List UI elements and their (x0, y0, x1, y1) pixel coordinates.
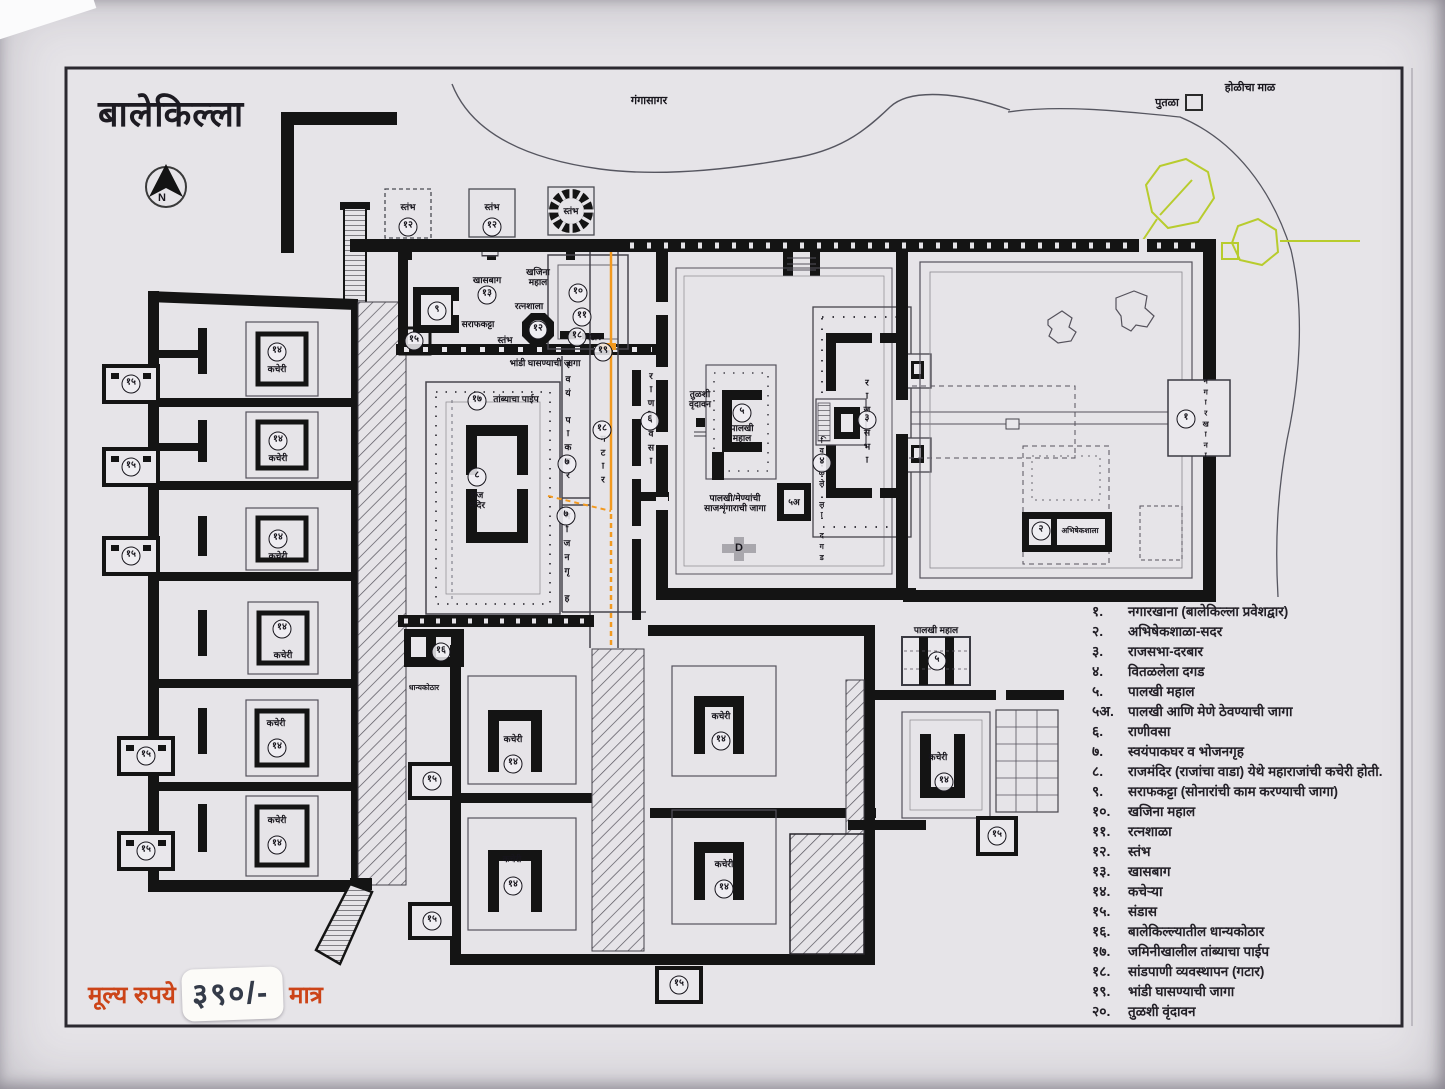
legend-item-number: १३. (1092, 862, 1128, 881)
legend-item-number: २. (1092, 622, 1128, 641)
legend-item-number: १२. (1092, 842, 1128, 861)
legend-item-text: वितळलेला दगड (1128, 662, 1205, 680)
legend-item-text: राजमंदिर (राजांचा वाडा) येथे महाराजांची … (1128, 762, 1382, 780)
legend-item-number: ८. (1092, 762, 1128, 781)
legend-item: १३.खासबाग (1092, 861, 1394, 881)
legend-item-number: १५. (1092, 902, 1128, 921)
scanned-map-page: गंगासागरहोळीचा माळपुतळाNस्तंभस्तंभस्तंभख… (0, 0, 1445, 1089)
legend-item: १९.भांडी घासण्याची जागा (1092, 981, 1394, 1001)
legend-item-number: ७. (1092, 742, 1128, 761)
legend-list: १.नगारखाना (बालेकिल्ला प्रवेशद्वार)२.अभि… (1092, 601, 1394, 1021)
legend-item-number: १९. (1092, 982, 1128, 1001)
legend-item-text: पालखी आणि मेणे ठेवण्याची जागा (1128, 702, 1293, 720)
price-row: मूल्य रुपये ३९०/- मात्र (88, 968, 323, 1020)
legend-item: १४.कचेऱ्या (1092, 881, 1394, 901)
legend-item: १७.जमिनीखालील तांब्याचा पाईप (1092, 941, 1394, 961)
legend-item-number: ११. (1092, 822, 1128, 841)
legend-item-text: संडास (1128, 902, 1157, 920)
legend-item: ८.राजमंदिर (राजांचा वाडा) येथे महाराजांच… (1092, 761, 1394, 781)
legend-item-text: स्वयंपाकघर व भोजनगृह (1128, 742, 1244, 760)
legend-item-text: अभिषेकशाळा-सदर (1128, 622, 1222, 640)
copper-pipe-line (548, 252, 611, 646)
legend-item: ५अ.पालखी आणि मेणे ठेवण्याची जागा (1092, 701, 1394, 721)
legend-item: २.अभिषेकशाळा-सदर (1092, 621, 1394, 641)
putala-square-icon (1186, 95, 1202, 110)
legend-item: ५.पालखी महाल (1092, 681, 1394, 701)
legend-item-text: जमिनीखालील तांब्याचा पाईप (1128, 942, 1269, 960)
legend-item-number: २०. (1092, 1002, 1128, 1021)
legend-item-text: कचेऱ्या (1128, 882, 1162, 900)
legend-item-number: १०. (1092, 802, 1128, 821)
legend-item: १५.संडास (1092, 901, 1394, 921)
legend-item: ९.सराफकट्टा (सोनारांची काम करण्याची जागा… (1092, 781, 1394, 801)
north-arrow-icon (146, 164, 186, 207)
legend-item: १०.खजिना महाल (1092, 801, 1394, 821)
legend-item-text: राणीवसा (1128, 722, 1170, 740)
gangasagar-lake-outline (452, 84, 1010, 172)
legend-item-text: स्तंभ (1128, 842, 1150, 860)
legend-item-text: पालखी महाल (1128, 682, 1195, 700)
legend-item: ६.राणीवसा (1092, 721, 1394, 741)
legend-item-number: १७. (1092, 942, 1128, 961)
stambh-tower-base-icon (548, 188, 594, 234)
legend-item: १.नगारखाना (बालेकिल्ला प्रवेशद्वार) (1092, 601, 1394, 621)
price-prefix: मूल्य रुपये (88, 978, 176, 1011)
page-title: बालेकिल्ला (98, 88, 244, 137)
legend-item-text: सांडपाणी व्यवस्थापन (गटार) (1128, 962, 1264, 980)
legend-item-number: ९. (1092, 782, 1128, 801)
legend-item-text: राजसभा-दरबार (1128, 642, 1203, 660)
legend-item-text: नगारखाना (बालेकिल्ला प्रवेशद्वार) (1128, 602, 1288, 620)
legend-item: ३.राजसभा-दरबार (1092, 641, 1394, 661)
nagarkhana-gate (1168, 380, 1230, 456)
price-suffix: मात्र (289, 978, 323, 1011)
legend-item-number: ५. (1092, 682, 1128, 701)
legend-item-number: ४. (1092, 662, 1128, 681)
price-sticker: ३९०/- (181, 966, 284, 1022)
legend-item: ४.वितळलेला दगड (1092, 661, 1394, 681)
legend-item: २०.तुळशी वृंदावन (1092, 1001, 1394, 1021)
legend-item-number: ५अ. (1092, 702, 1128, 721)
legend-item: १८.सांडपाणी व्यवस्थापन (गटार) (1092, 961, 1394, 981)
legend-item: १२.स्तंभ (1092, 841, 1394, 861)
legend-item: १६.बालेकिल्ल्यातील धान्यकोठार (1092, 921, 1394, 941)
legend-item: ११.रत्नशाळा (1092, 821, 1394, 841)
legend-item: ७.स्वयंपाकघर व भोजनगृह (1092, 741, 1394, 761)
legend-item-number: १. (1092, 602, 1128, 621)
legend-item-number: १८. (1092, 962, 1128, 981)
legend-item-number: १६. (1092, 922, 1128, 941)
legend-item-text: बालेकिल्ल्यातील धान्यकोठार (1128, 922, 1264, 940)
legend-item-text: तुळशी वृंदावन (1128, 1002, 1196, 1020)
legend-item-number: ६. (1092, 722, 1128, 741)
legend-item-text: भांडी घासण्याची जागा (1128, 982, 1234, 1000)
legend-item-number: १४. (1092, 882, 1128, 901)
legend-item-text: रत्नशाळा (1128, 822, 1172, 840)
legend-item-number: ३. (1092, 642, 1128, 661)
legend-item-text: खजिना महाल (1128, 802, 1195, 820)
legend-item-text: खासबाग (1128, 862, 1170, 880)
legend-item-text: सराफकट्टा (सोनारांची काम करण्याची जागा) (1128, 782, 1338, 800)
